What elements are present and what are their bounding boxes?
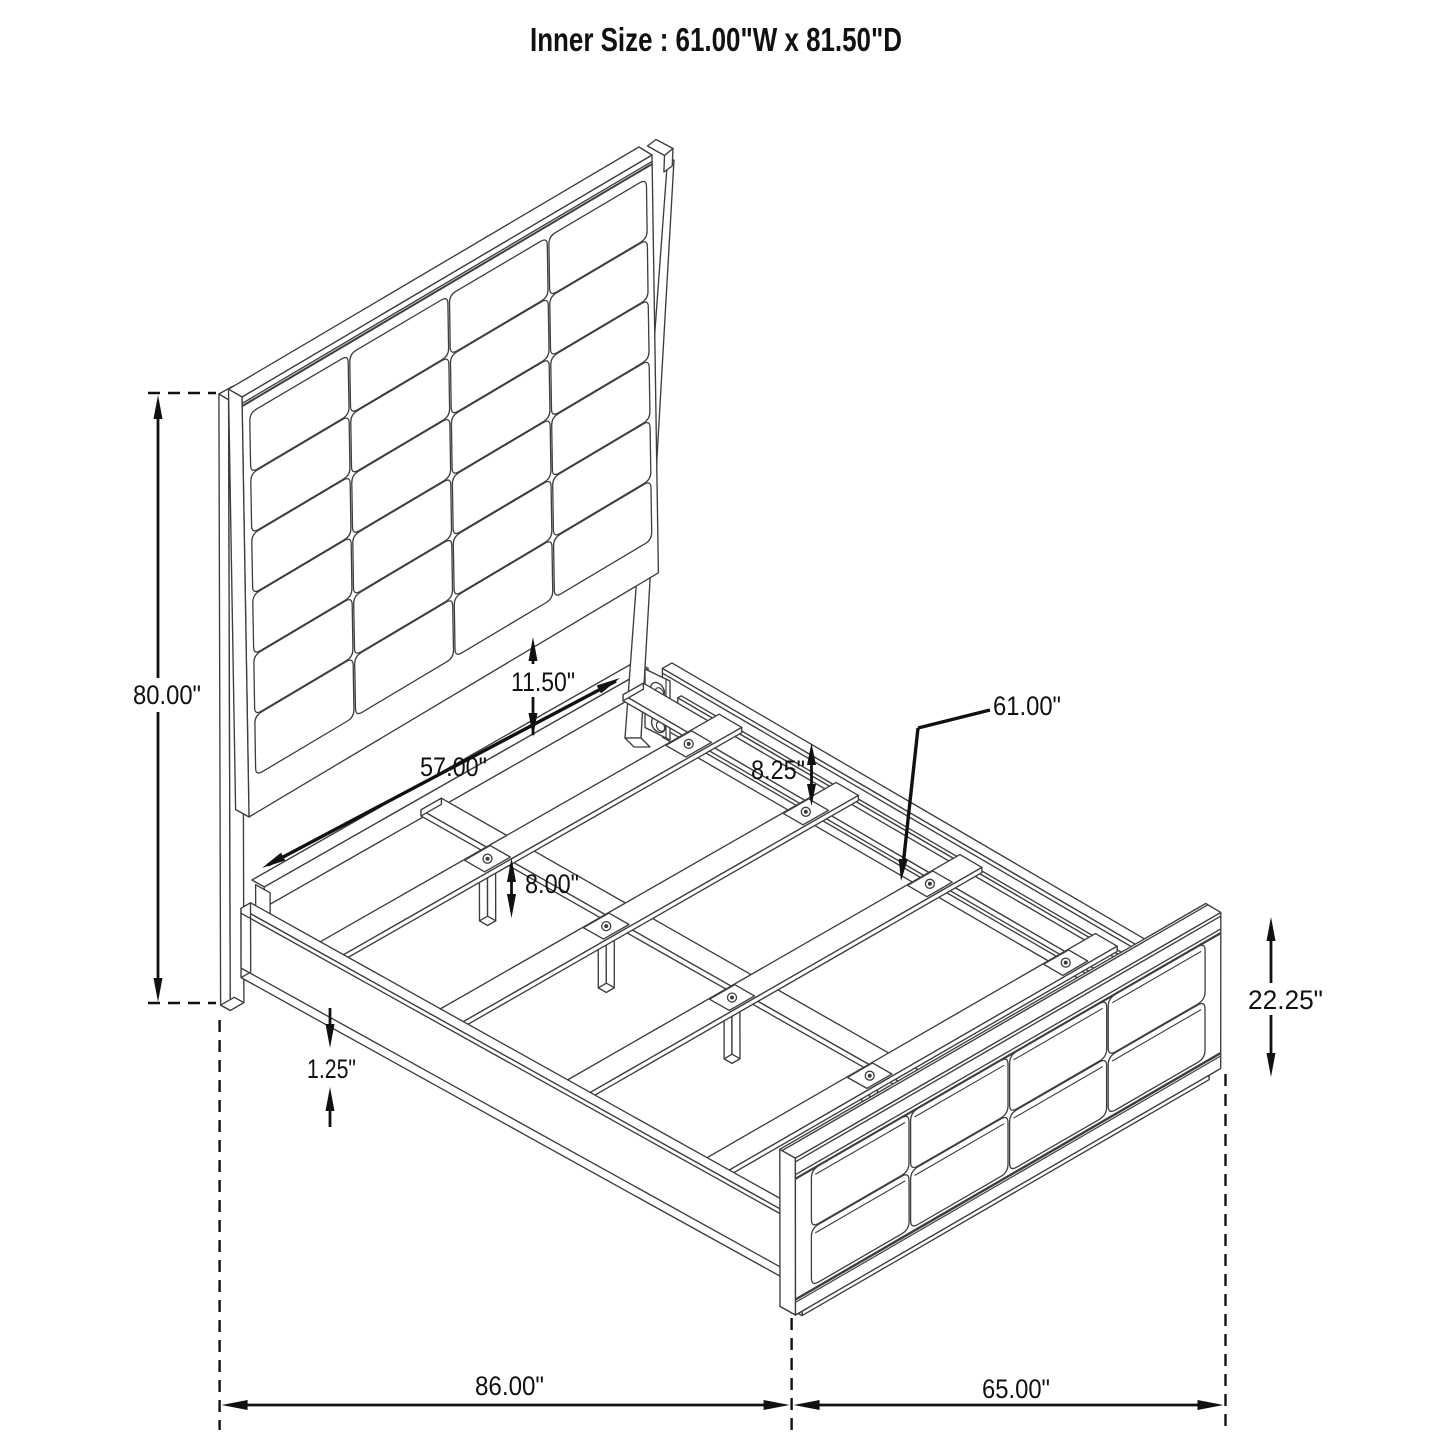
svg-text:8.00": 8.00" — [525, 869, 579, 899]
svg-text:22.25": 22.25" — [1248, 985, 1323, 1015]
svg-text:57.00": 57.00" — [420, 752, 487, 782]
svg-text:65.00": 65.00" — [982, 1374, 1050, 1404]
svg-text:11.50": 11.50" — [511, 667, 575, 697]
svg-text:1.25": 1.25" — [307, 1054, 356, 1084]
svg-text:8.25": 8.25" — [751, 755, 805, 785]
svg-text:86.00": 86.00" — [475, 1371, 544, 1401]
svg-text:80.00": 80.00" — [133, 680, 201, 710]
svg-text:Inner Size : 61.00"W x 81.50"D: Inner Size : 61.00"W x 81.50"D — [530, 21, 902, 58]
svg-text:61.00": 61.00" — [993, 691, 1061, 721]
